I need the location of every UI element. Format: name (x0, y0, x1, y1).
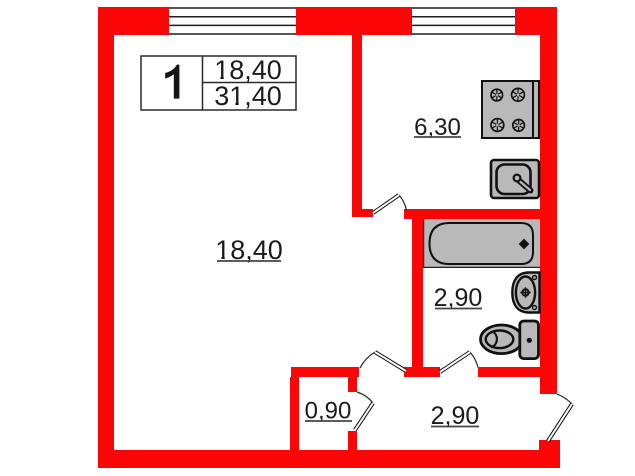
svg-text:31,40: 31,40 (214, 81, 282, 111)
